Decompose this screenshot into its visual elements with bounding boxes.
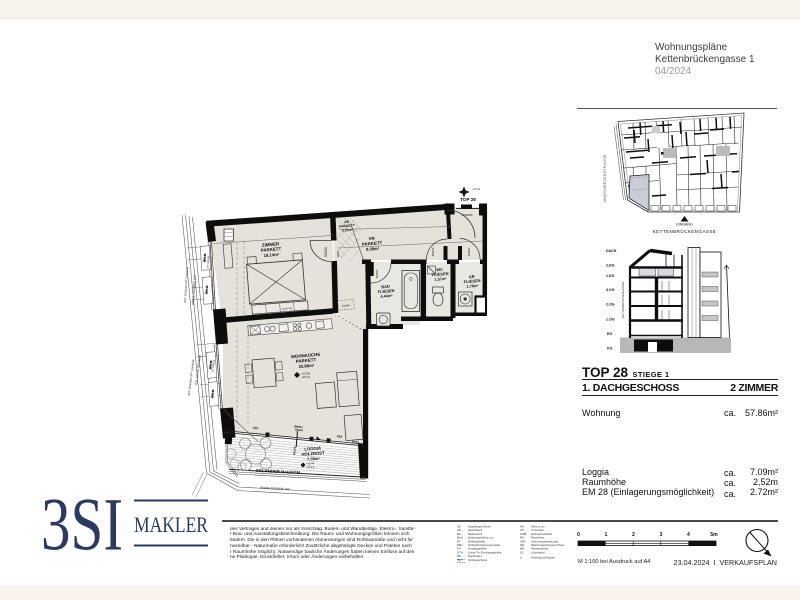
svg-text:⊻: ⊻ — [520, 556, 522, 560]
svg-text:+15.13: +15.13 — [301, 375, 310, 379]
svg-text:KETTENBRÜCKENGASSE: KETTENBRÜCKENGASSE — [621, 282, 625, 319]
svg-text:Verbindung Pergola: Verbindung Pergola — [531, 556, 555, 560]
svg-text:EINGANG: EINGANG — [676, 223, 693, 227]
svg-text:Heizwärmebedarf: Heizwärmebedarf — [531, 532, 552, 536]
svg-text:Vorhangschiene: Vorhangschiene — [468, 558, 488, 562]
svg-text:MAKLER: MAKLER — [134, 512, 208, 537]
svg-text:GTH: GTH — [457, 550, 463, 554]
svg-text:Luftschacht: Luftschacht — [531, 550, 545, 554]
svg-text:KG: KG — [607, 347, 613, 351]
svg-text:KOL RINNE GESIMSE: KOL RINNE GESIMSE — [194, 354, 202, 385]
svg-text:100/250: 100/250 — [462, 213, 473, 217]
svg-text:Höhe in cm: Höhe in cm — [531, 525, 545, 529]
svg-text:BRH 88: BRH 88 — [205, 285, 209, 294]
svg-text:ET: ET — [457, 539, 461, 543]
svg-text:1.OG: 1.OG — [606, 318, 615, 322]
svg-text:Lichte Tür-Durchgangshöhe: Lichte Tür-Durchgangshöhe — [468, 550, 502, 554]
svg-text:Fertigungshöhe: Fertigungshöhe — [468, 547, 487, 551]
svg-text:GELÄNDER H=110CM: GELÄNDER H=110CM — [256, 468, 301, 475]
svg-text:Abgehängte Decke: Abgehängte Decke — [468, 525, 491, 529]
svg-text:Waschmaschinenanschluss: Waschmaschinenanschluss — [531, 543, 565, 547]
svg-text:IT-Verteiler: IT-Verteiler — [531, 528, 544, 532]
svg-text:DB: DB — [457, 554, 461, 558]
svg-text:3: 3 — [660, 532, 663, 538]
svg-text:ITV: ITV — [520, 528, 524, 532]
svg-text:2.DG: 2.DG — [606, 264, 615, 268]
svg-text:OFF 15x64/40 OFF 15x64/40: OFF 15x64/40 OFF 15x64/40 — [187, 359, 195, 396]
svg-text:1.DG: 1.DG — [606, 274, 615, 278]
svg-text:KLIMA: KLIMA — [342, 303, 351, 308]
svg-text:EG: EG — [607, 332, 612, 336]
svg-text:2: 2 — [632, 532, 635, 538]
svg-text:Elektrotableau: Elektrotableau — [468, 539, 486, 543]
svg-text:DACH: DACH — [606, 249, 617, 253]
svg-text:TOP 28: TOP 28 — [460, 197, 476, 202]
svg-text:2.OG: 2.OG — [606, 303, 615, 307]
svg-text:Badewanne: Badewanne — [468, 532, 483, 536]
svg-text:Raumhöhe: Raumhöhe — [531, 536, 545, 540]
svg-text:+15.12: +15.12 — [306, 465, 315, 469]
svg-text:80/220: 80/220 — [324, 247, 328, 257]
svg-text:KETTENBRÜCKENGASSE: KETTENBRÜCKENGASSE — [653, 228, 717, 234]
svg-text:Schmutzwasserpumpe: Schmutzwasserpumpe — [531, 539, 559, 543]
svg-text:80/220: 80/220 — [431, 247, 435, 256]
svg-text:Brüstungshöhe in cm: Brüstungshöhe in cm — [468, 536, 494, 540]
svg-text:90/220: 90/220 — [467, 247, 471, 256]
svg-text:Fußbodenheizungsverteiler: Fußbodenheizungsverteiler — [468, 543, 501, 547]
svg-text:3SI: 3SI — [41, 490, 123, 560]
svg-text:80/200: 80/200 — [375, 269, 379, 278]
svg-text:0: 0 — [577, 532, 580, 538]
svg-text:AD: AD — [457, 525, 461, 529]
svg-text:+15.02: +15.02 — [472, 187, 481, 191]
svg-text:4: 4 — [687, 532, 690, 538]
svg-text:WA: WA — [520, 543, 524, 547]
svg-text:HH: HH — [520, 525, 524, 529]
svg-text:SSP: SSP — [520, 539, 526, 543]
svg-text:1: 1 — [605, 532, 608, 538]
svg-text:WE: WE — [520, 547, 525, 551]
svg-text:RH: RH — [520, 536, 524, 540]
svg-text:OFF 11x64/40 OFF 11x64/40: OFF 11x64/40 OFF 11x64/40 — [183, 266, 190, 303]
svg-text:Wärmepumpe: Wärmepumpe — [531, 547, 548, 551]
svg-text:MARGARETENSTRASSE: MARGARETENSTRASSE — [603, 154, 607, 202]
svg-text:3.OG: 3.OG — [606, 288, 615, 292]
svg-text:RINNE GESIMSE 305: RINNE GESIMSE 305 — [260, 486, 290, 492]
svg-text:LS: LS — [520, 550, 523, 554]
svg-text:Dachboden: Dachboden — [468, 554, 482, 558]
svg-text:KASTEN: KASTEN — [282, 306, 293, 311]
svg-text:FH: FH — [457, 547, 461, 551]
svg-text:AB: AB — [457, 528, 461, 532]
svg-text:90/220: 90/220 — [292, 446, 297, 455]
svg-text:7.09m²: 7.09m² — [307, 456, 321, 462]
svg-text:5m: 5m — [710, 532, 718, 538]
svg-text:FBH: FBH — [457, 543, 462, 547]
svg-text:Abstellraum: Abstellraum — [468, 528, 483, 532]
svg-text:90/220: 90/220 — [295, 428, 304, 433]
svg-text:BmH: BmH — [457, 536, 463, 540]
svg-text:HWB: HWB — [520, 532, 526, 536]
svg-text:BA: BA — [457, 532, 461, 536]
